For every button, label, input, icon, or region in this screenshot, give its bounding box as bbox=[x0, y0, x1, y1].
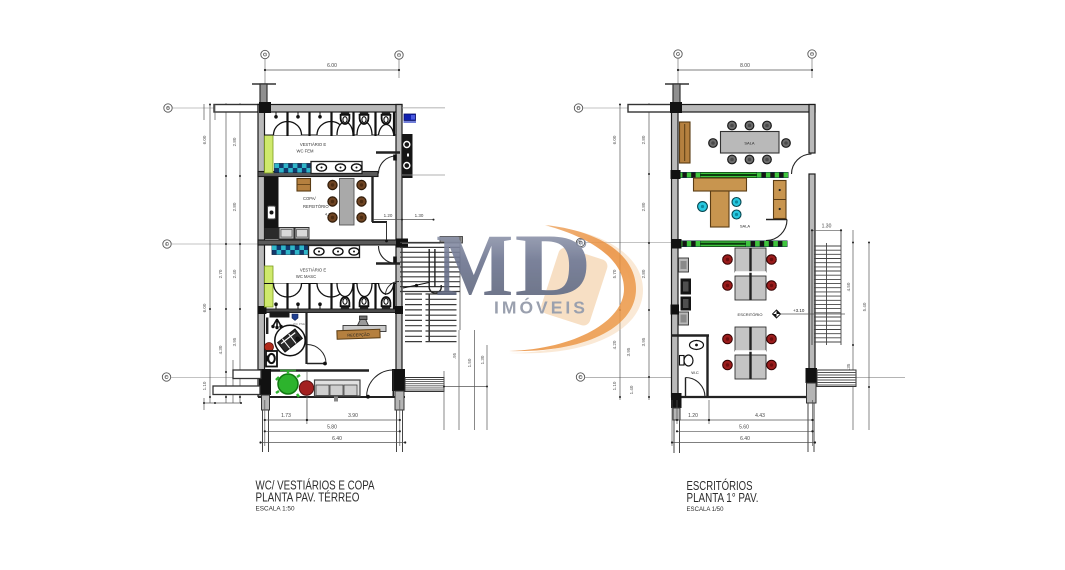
svg-text:2.80: 2.80 bbox=[232, 202, 237, 211]
svg-text:1.10: 1.10 bbox=[612, 381, 617, 390]
svg-text:3.90: 3.90 bbox=[348, 413, 358, 419]
svg-text:6.40: 6.40 bbox=[740, 436, 750, 442]
svg-text:1.20: 1.20 bbox=[384, 213, 393, 218]
svg-text:2.80: 2.80 bbox=[641, 269, 646, 278]
svg-text:8.00: 8.00 bbox=[740, 63, 750, 69]
svg-text:1.40: 1.40 bbox=[629, 385, 634, 394]
svg-text:G: G bbox=[676, 52, 680, 57]
svg-text:RECEPÇÃO: RECEPÇÃO bbox=[347, 332, 370, 338]
svg-text:WC MASC: WC MASC bbox=[296, 274, 316, 279]
svg-text:5.70: 5.70 bbox=[612, 269, 617, 278]
svg-text:+3.10: +3.10 bbox=[793, 308, 805, 313]
svg-text:PLANTA PAV. TÉRREO: PLANTA PAV. TÉRREO bbox=[256, 489, 360, 504]
svg-text:IMÓVEIS: IMÓVEIS bbox=[494, 297, 588, 318]
svg-text:R: R bbox=[579, 242, 584, 248]
svg-text:E: E bbox=[579, 375, 582, 380]
svg-text:B: B bbox=[577, 106, 580, 111]
svg-text:1.30: 1.30 bbox=[822, 224, 832, 230]
svg-text:E: E bbox=[165, 375, 168, 380]
svg-text:3.95: 3.95 bbox=[232, 337, 237, 346]
svg-text:4.30: 4.30 bbox=[218, 345, 223, 354]
svg-text:3.95: 3.95 bbox=[641, 337, 646, 346]
svg-text:5.60: 5.60 bbox=[739, 425, 749, 431]
svg-text:PLANTA 1° PAV.: PLANTA 1° PAV. bbox=[687, 490, 759, 505]
svg-text:G: G bbox=[263, 52, 267, 57]
svg-text:4.43: 4.43 bbox=[755, 413, 765, 419]
svg-text:COPA/: COPA/ bbox=[303, 196, 317, 201]
svg-text:.95: .95 bbox=[452, 352, 457, 359]
svg-text:H: H bbox=[397, 53, 400, 58]
svg-text:1.30: 1.30 bbox=[415, 213, 424, 218]
svg-text:6.40: 6.40 bbox=[332, 436, 342, 442]
svg-text:ESCALA 1:50: ESCALA 1:50 bbox=[256, 506, 295, 513]
svg-text:1.73: 1.73 bbox=[281, 413, 291, 419]
svg-text:2.70: 2.70 bbox=[218, 269, 223, 278]
svg-text:VESTIÁRIO E: VESTIÁRIO E bbox=[300, 268, 327, 273]
svg-text:5.40: 5.40 bbox=[862, 302, 867, 311]
svg-text:SALA: SALA bbox=[740, 224, 751, 229]
svg-text:ESCRITÓRIO: ESCRITÓRIO bbox=[738, 312, 763, 317]
svg-text:6.00: 6.00 bbox=[202, 135, 207, 144]
svg-text:W.C: W.C bbox=[691, 370, 699, 375]
svg-text:1.20: 1.20 bbox=[688, 413, 698, 419]
svg-text:F: F bbox=[166, 242, 169, 247]
svg-text:2.80: 2.80 bbox=[232, 137, 237, 146]
svg-text:6.00: 6.00 bbox=[612, 135, 617, 144]
svg-text:2.80: 2.80 bbox=[641, 202, 646, 211]
svg-text:1.10: 1.10 bbox=[202, 381, 207, 390]
svg-text:SALA: SALA bbox=[744, 141, 755, 146]
svg-text:6.00: 6.00 bbox=[327, 63, 337, 69]
svg-text:2.80: 2.80 bbox=[641, 135, 646, 144]
svg-text:1.50: 1.50 bbox=[467, 358, 472, 367]
svg-text:REFEITÓRIO: REFEITÓRIO bbox=[303, 204, 329, 209]
svg-text:2.40: 2.40 bbox=[232, 269, 237, 278]
svg-text:H: H bbox=[810, 52, 813, 57]
svg-text:WC FEM: WC FEM bbox=[297, 149, 314, 154]
svg-text:1.30: 1.30 bbox=[480, 355, 485, 364]
svg-text:4.50: 4.50 bbox=[846, 282, 851, 291]
svg-text:ESCALA 1/50: ESCALA 1/50 bbox=[687, 506, 724, 513]
svg-text:3.95: 3.95 bbox=[626, 347, 631, 356]
svg-text:B: B bbox=[166, 106, 169, 111]
svg-text:5.80: 5.80 bbox=[327, 425, 337, 431]
svg-text:VESTIÁRIO E: VESTIÁRIO E bbox=[300, 142, 327, 147]
svg-text:4.20: 4.20 bbox=[612, 340, 617, 349]
svg-text:6.00: 6.00 bbox=[202, 303, 207, 312]
